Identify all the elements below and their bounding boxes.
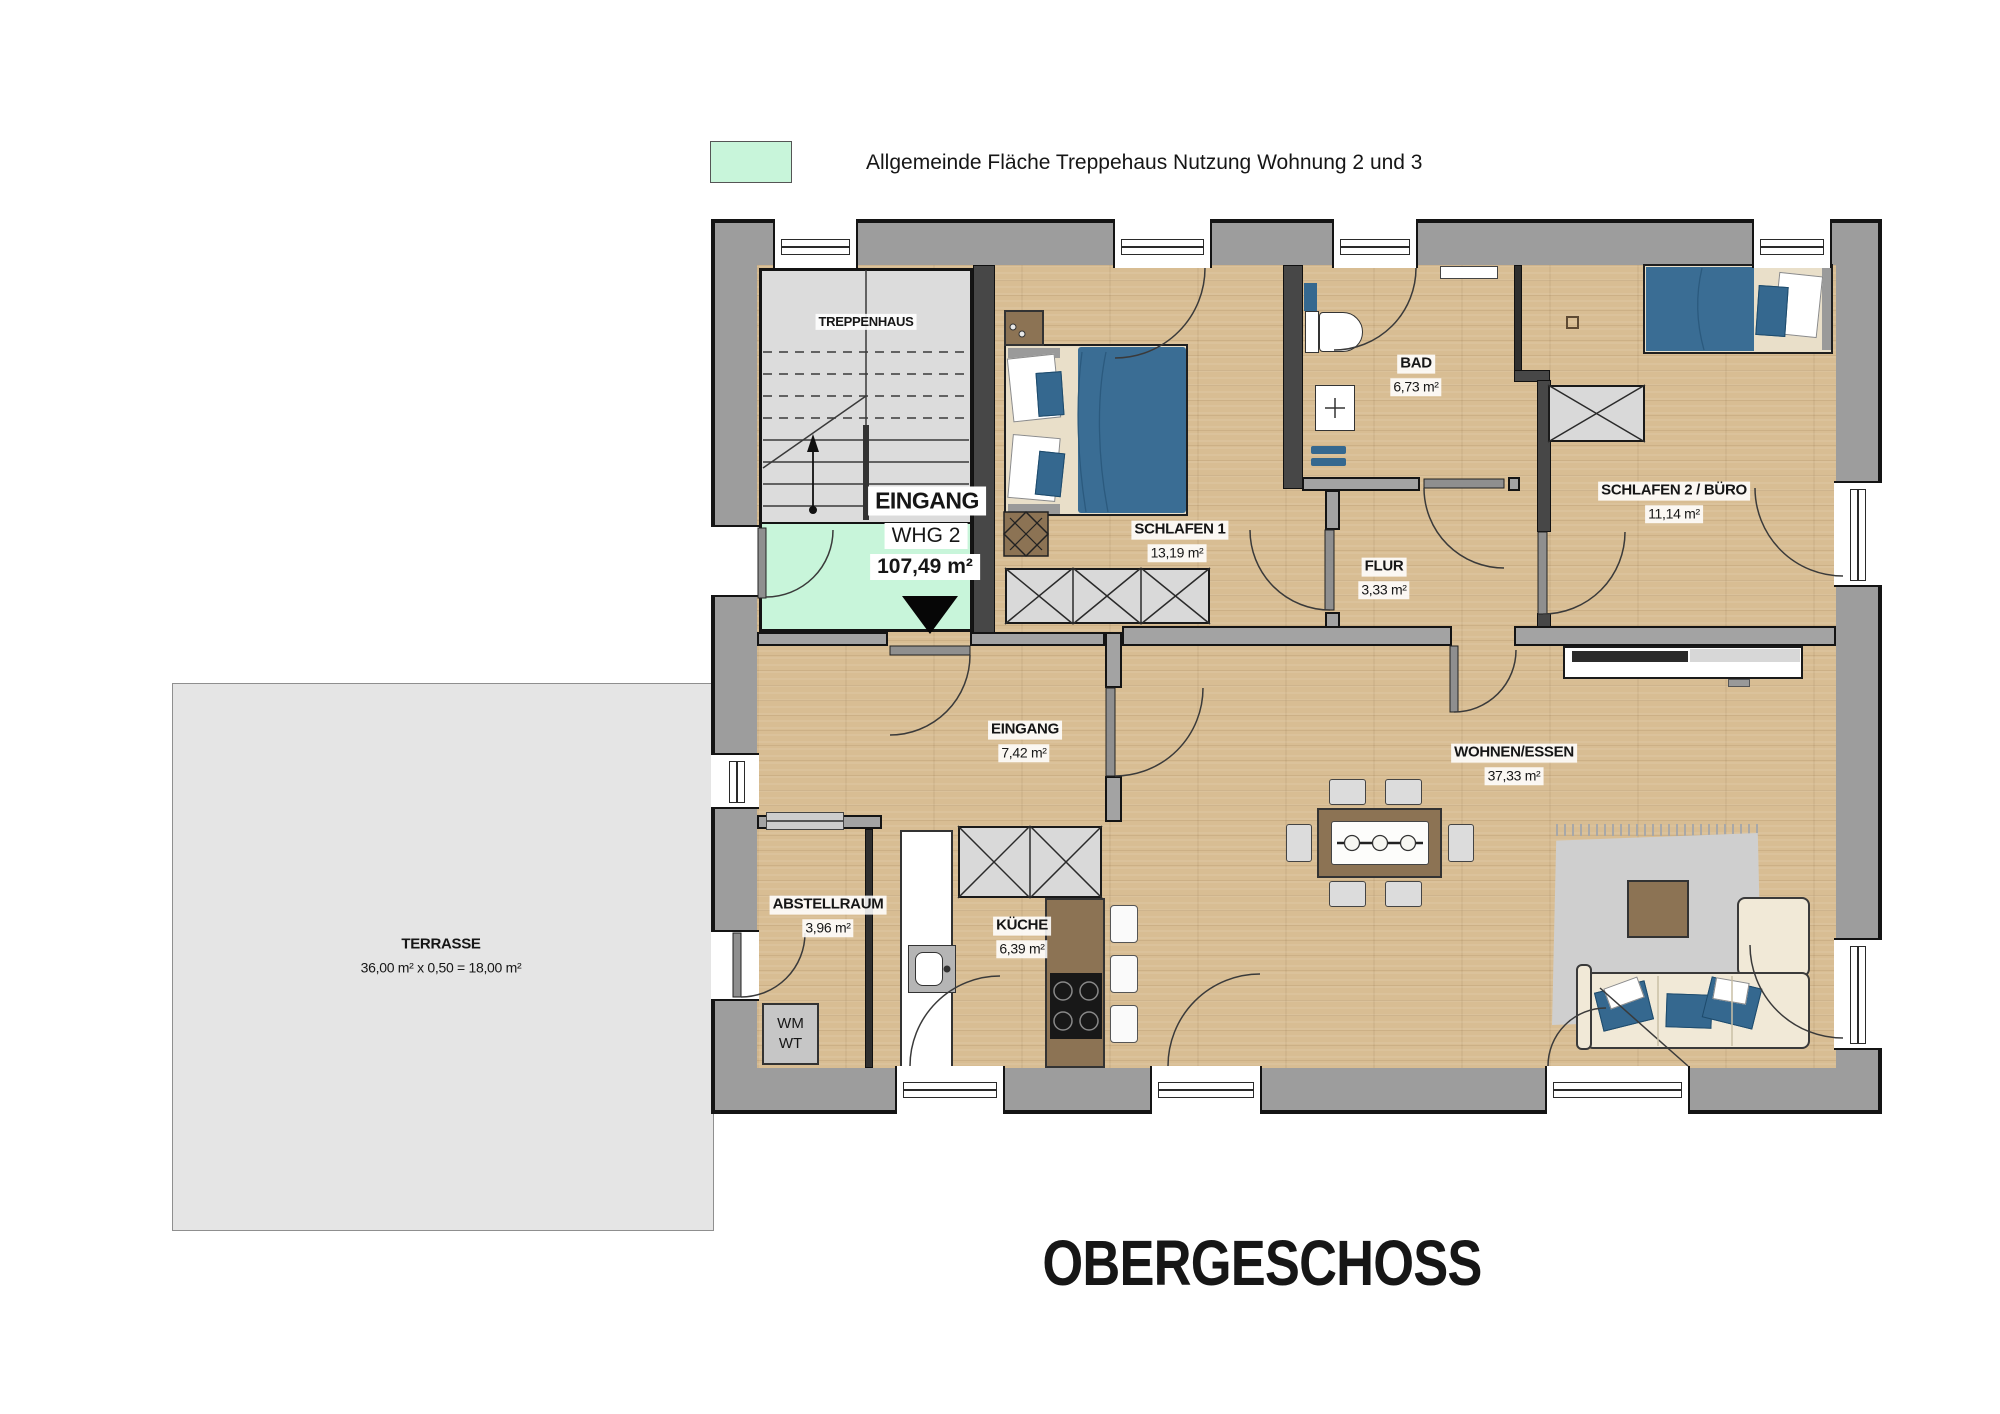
legend-label: Allgemeinde Fläche Treppehaus Nutzung Wo… <box>866 151 1423 175</box>
bed-duvet <box>1078 347 1186 513</box>
wall-segment <box>1508 477 1520 491</box>
terrace-area <box>172 683 714 1231</box>
window <box>1834 938 1882 1050</box>
wall-segment <box>1325 490 1340 530</box>
terrace-area-label: 36,00 m² x 0,50 = 18,00 m² <box>358 959 525 977</box>
dining-chair <box>1329 779 1366 805</box>
window <box>895 1066 1005 1114</box>
pillow-blue <box>1755 285 1788 337</box>
wardrobe <box>1005 568 1210 624</box>
room-area-eingang: 7,42 m² <box>998 744 1049 762</box>
room-label-wohnen: WOHNEN/ESSEN <box>1451 744 1577 763</box>
bar-stool <box>1110 955 1138 993</box>
room-label-bad: BAD <box>1397 355 1435 374</box>
bar-stool <box>1110 905 1138 943</box>
window <box>1113 219 1212 268</box>
entrance-arrow <box>902 596 958 634</box>
coffee-table <box>1627 880 1689 938</box>
wardrobe <box>1548 385 1645 442</box>
pillow-blue <box>1035 451 1065 497</box>
room-label-schlafen2: SCHLAFEN 2 / BÜRO <box>1598 482 1750 501</box>
dining-chair <box>1448 824 1474 862</box>
towel-rail <box>1440 266 1498 279</box>
window <box>1752 219 1832 268</box>
whg2-entry-title: EINGANG <box>868 487 986 516</box>
wall-segment <box>1105 776 1122 822</box>
room-area-flur: 3,33 m² <box>1358 581 1409 599</box>
nightstand <box>1004 310 1044 346</box>
table-runner <box>1331 821 1429 865</box>
dining-chair <box>1286 824 1312 862</box>
wall-segment <box>1302 477 1420 491</box>
room-label-flur: FLUR <box>1362 558 1407 577</box>
window <box>711 753 759 809</box>
wall-segment <box>1122 626 1452 646</box>
room-area-abstellraum: 3,96 m² <box>802 919 853 937</box>
sofa-armrest <box>1576 964 1592 1050</box>
legend-swatch <box>710 141 792 183</box>
wall-segment <box>970 632 1105 646</box>
tv <box>1572 651 1688 662</box>
headboard-strip <box>1008 504 1060 514</box>
wall-segment <box>865 829 873 1068</box>
dining-chair <box>1385 881 1422 907</box>
floor-marker <box>1566 316 1579 329</box>
window <box>773 219 858 268</box>
page-title: OBERGESCHOSS <box>1042 1226 1481 1300</box>
headboard-strip <box>1822 268 1831 350</box>
room-area-schlafen2: 11,14 m² <box>1645 505 1703 523</box>
room-area-kueche: 6,39 m² <box>996 940 1047 958</box>
whg2-entry-subtitle: WHG 2 <box>885 523 968 549</box>
wall-segment <box>973 265 995 646</box>
wall-segment <box>1283 265 1303 489</box>
washer-dryer: WM WT <box>762 1003 819 1065</box>
window <box>1150 1066 1262 1114</box>
door-opening <box>711 525 759 597</box>
wall-segment <box>1105 632 1122 688</box>
sink-basin <box>915 952 943 986</box>
towel-blue <box>1311 458 1346 466</box>
dining-chair <box>1329 881 1366 907</box>
toilet-bowl <box>1319 312 1363 352</box>
window <box>1545 1066 1690 1114</box>
floorplan-page: Allgemeinde Fläche Treppehaus Nutzung Wo… <box>0 0 2000 1414</box>
terrace-label: TERRASSE <box>398 936 483 955</box>
wall-segment <box>1514 626 1836 646</box>
kitchen-tall-cabinets <box>958 826 1102 898</box>
washbasin <box>1315 385 1355 431</box>
room-label-abstellraum: ABSTELLRAUM <box>770 896 887 915</box>
cooktop <box>1050 973 1102 1039</box>
room-label-eingang: EINGANG <box>988 721 1062 740</box>
wall-segment <box>757 632 888 646</box>
wall-segment <box>1514 265 1522 382</box>
room-label-kueche: KÜCHE <box>993 917 1051 936</box>
washer-label: WM <box>777 1014 804 1034</box>
bar-stool <box>1110 1005 1138 1043</box>
dining-chair <box>1385 779 1422 805</box>
room-label-treppenhaus: TREPPENHAUS <box>816 314 917 330</box>
room-area-schlafen1: 13,19 m² <box>1148 544 1207 562</box>
room-label-schlafen1: SCHLAFEN 1 <box>1131 521 1228 540</box>
towel-blue <box>1304 283 1317 311</box>
sideboard-shelf <box>1690 649 1800 662</box>
sliding-door <box>766 812 844 830</box>
sofa-chaise <box>1737 897 1810 977</box>
towel-blue <box>1311 446 1346 454</box>
sideboard-bracket <box>1728 679 1750 687</box>
door-opening <box>711 930 759 1001</box>
window <box>1332 219 1418 268</box>
toilet-tank <box>1305 311 1319 353</box>
whg2-entry-area: 107,49 m² <box>870 554 980 580</box>
bed-duvet <box>1646 267 1754 351</box>
pillow-blue <box>1035 371 1064 417</box>
room-area-bad: 6,73 m² <box>1390 378 1441 396</box>
window <box>1834 481 1882 587</box>
dryer-label: WT <box>779 1034 802 1054</box>
room-area-wohnen: 37,33 m² <box>1485 767 1544 785</box>
